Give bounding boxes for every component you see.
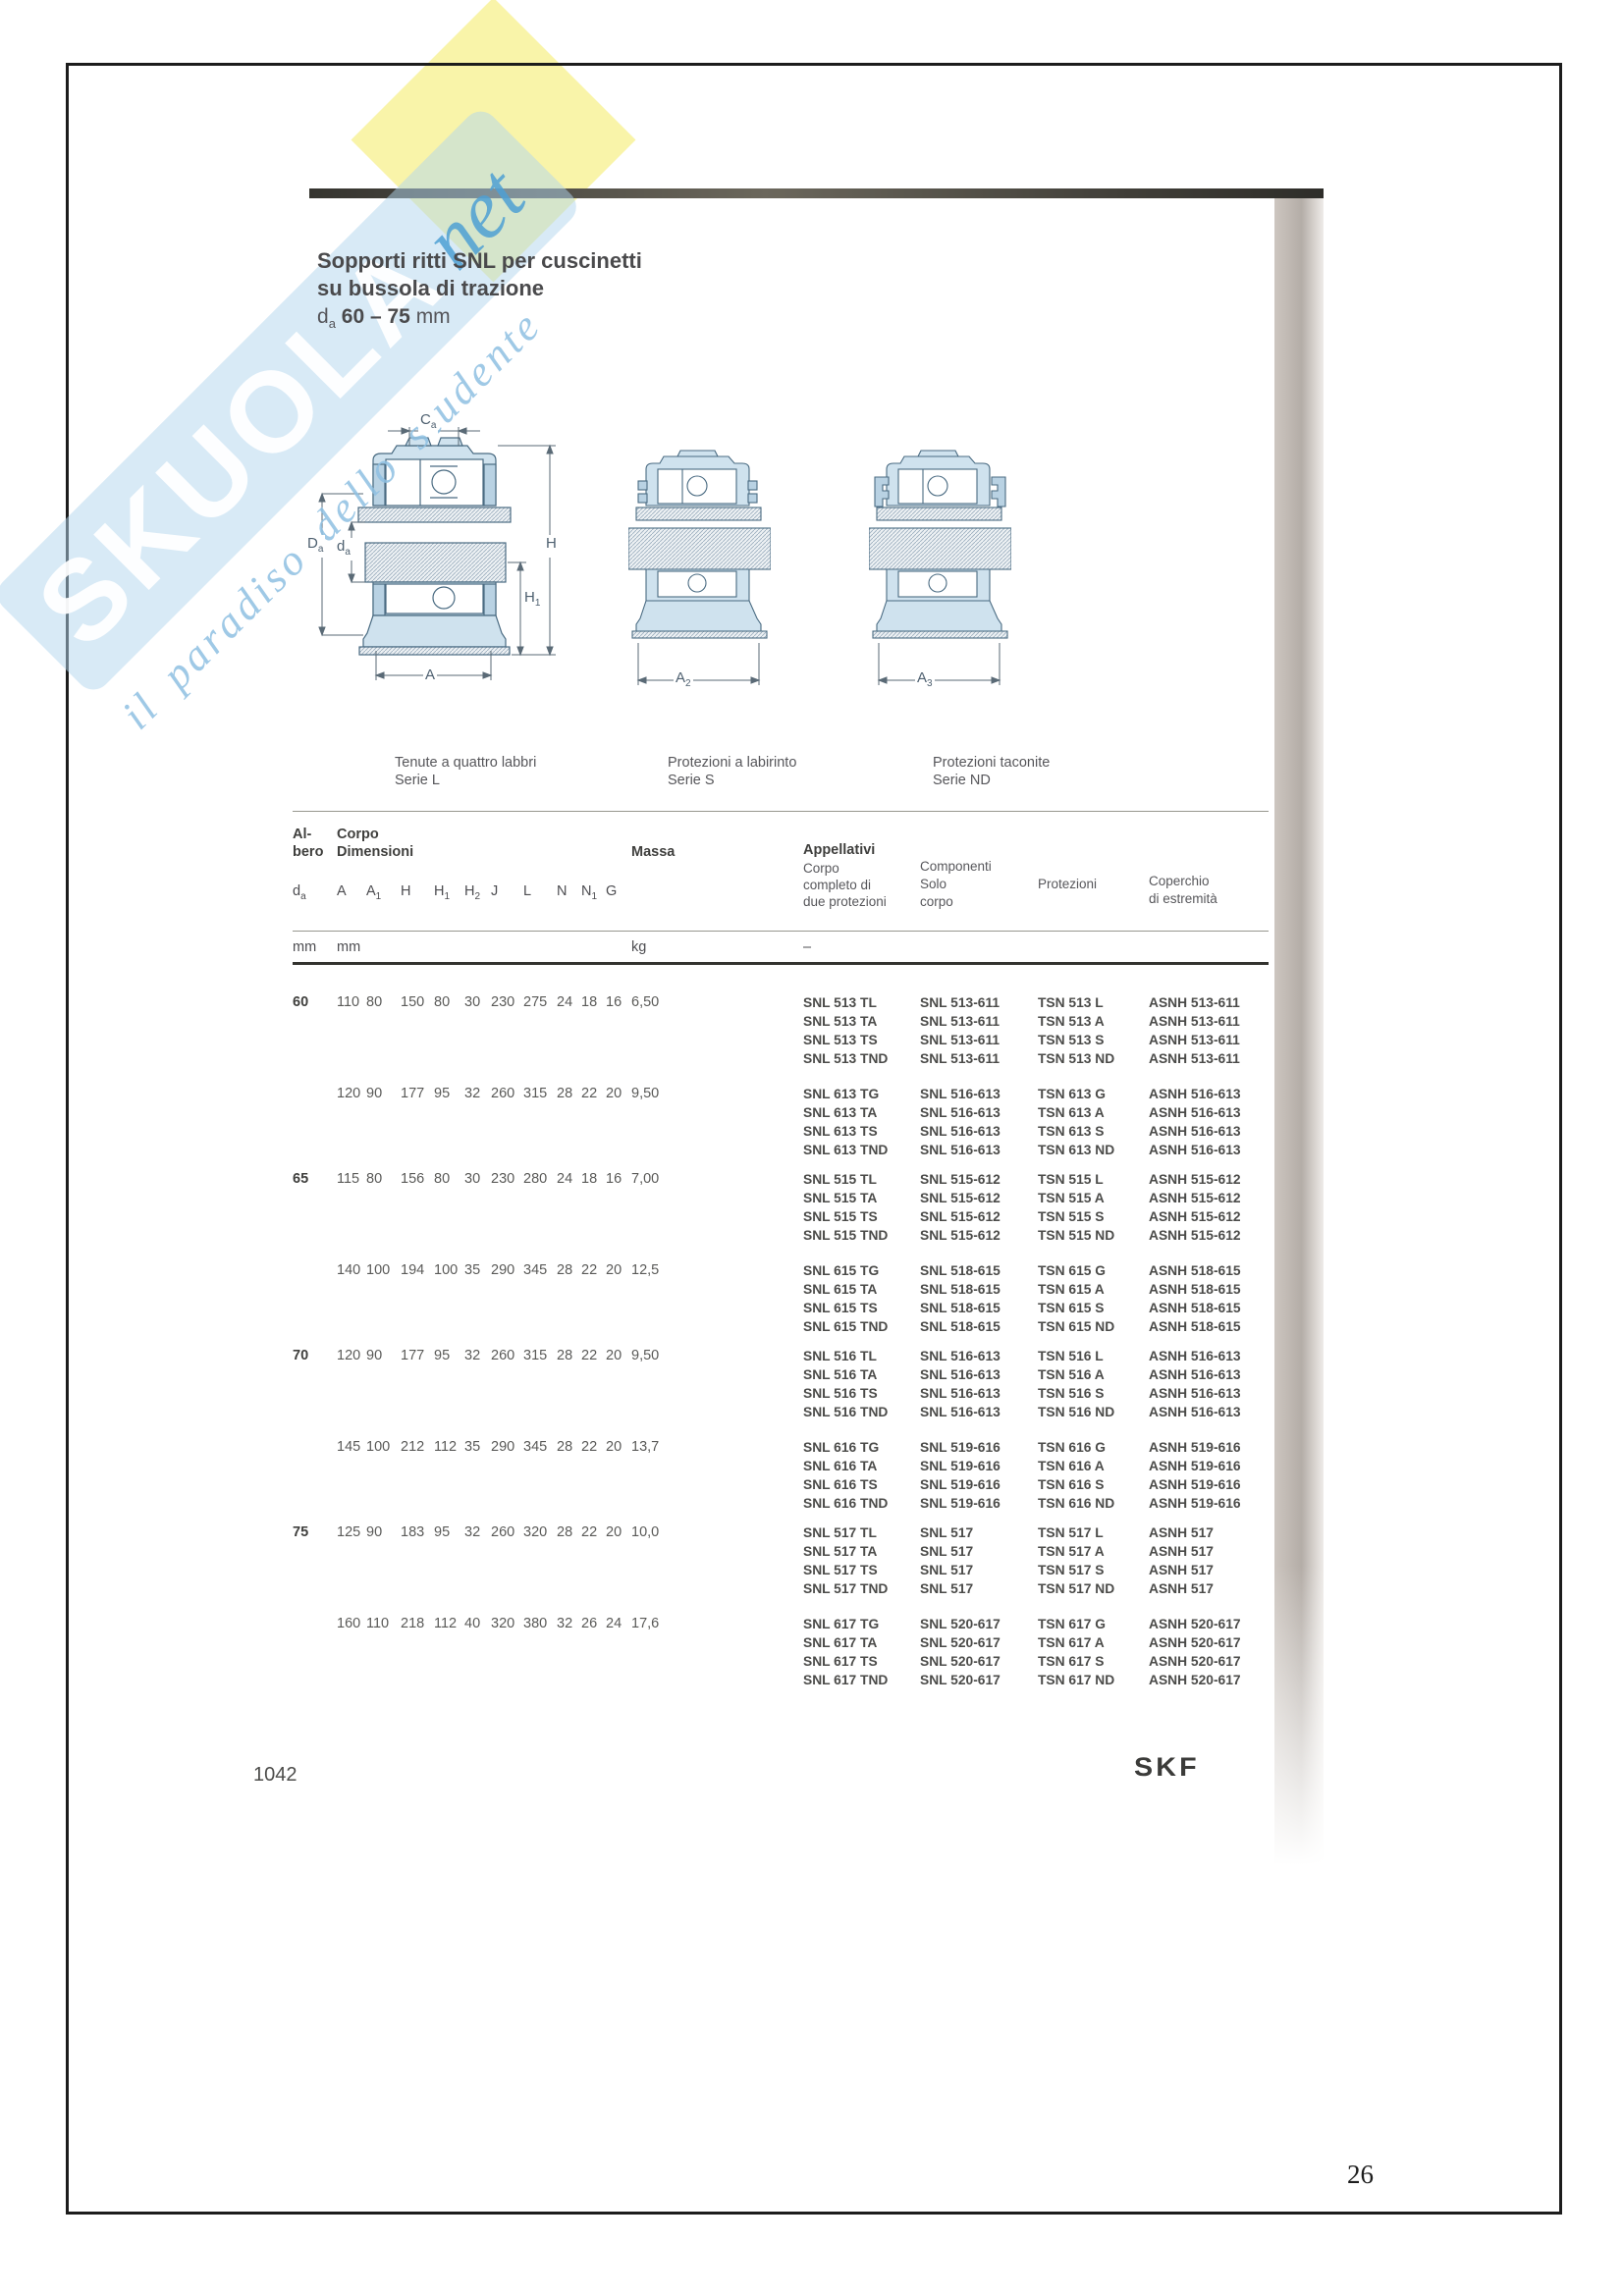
table-cell: 32 — [464, 1347, 480, 1365]
table-cell: SNL 616 TND — [803, 1494, 888, 1513]
table-cell: TSN 617 ND — [1038, 1671, 1114, 1689]
table-cell: 22 — [581, 1085, 597, 1103]
table-cell: SNL 616 TG — [803, 1438, 879, 1457]
table-cell: SNL 617 TG — [803, 1615, 879, 1633]
title-line-2: su bussola di trazione — [317, 275, 642, 302]
col-sym-J: J — [491, 883, 498, 902]
table-cell: SNL 617 TND — [803, 1671, 888, 1689]
table-cell: ASNH 518-615 — [1149, 1299, 1241, 1317]
table-cell: SNL 520-617 — [920, 1615, 1001, 1633]
table-cell: TSN 515 ND — [1038, 1226, 1114, 1245]
table-cell: SNL 517 TA — [803, 1542, 877, 1561]
header-appellativi: Appellativi — [803, 842, 875, 858]
table-cell: SNL 613 TA — [803, 1103, 877, 1122]
table-cell: ASNH 520-617 — [1149, 1652, 1241, 1671]
table-cell: SNL 516 TND — [803, 1403, 888, 1421]
table-cell: 20 — [606, 1438, 622, 1457]
table-cell: 218 — [401, 1615, 424, 1633]
table-cell: SNL 515-612 — [920, 1170, 1001, 1189]
table-cell: TSN 616 S — [1038, 1475, 1104, 1494]
table-cell: 230 — [491, 1170, 514, 1189]
table-cell: 280 — [523, 1170, 547, 1189]
table-cell: TSN 613 A — [1038, 1103, 1105, 1122]
dim-label-h1: H1 — [522, 589, 542, 612]
table-cell: ASNH 519-616 — [1149, 1438, 1241, 1457]
table-cell: SNL 515-612 — [920, 1226, 1001, 1245]
table-cell: 230 — [491, 993, 514, 1012]
table-cell: 32 — [464, 1523, 480, 1542]
table-cell: 100 — [434, 1261, 458, 1280]
table-cell: ASNH 518-615 — [1149, 1261, 1241, 1280]
table-cell: 90 — [366, 1523, 382, 1542]
table-cell: 22 — [581, 1523, 597, 1542]
table-cell: 17,6 — [631, 1615, 659, 1633]
catalog-page-number: 1042 — [253, 1764, 298, 1787]
col-sym-A1: A1 — [366, 883, 381, 902]
table-cell: SNL 515 TS — [803, 1207, 878, 1226]
table-cell: SNL 520-617 — [920, 1671, 1001, 1689]
unit-body: mm — [337, 939, 360, 955]
table-cell: SNL 520-617 — [920, 1652, 1001, 1671]
caption-serie-nd: Protezioni taconite Serie ND — [933, 754, 1050, 789]
table-cell: 13,7 — [631, 1438, 659, 1457]
table-cell: 32 — [464, 1085, 480, 1103]
table-cell: 380 — [523, 1615, 547, 1633]
dim-label-a2: A2 — [674, 669, 693, 692]
table-cell: 145 — [337, 1438, 360, 1457]
col-sym-H1: H1 — [434, 883, 450, 902]
table-cell: TSN 615 S — [1038, 1299, 1104, 1317]
scan-shadow-band — [1274, 196, 1324, 1865]
table-cell: 18 — [581, 1170, 597, 1189]
table-row: 1401001941003529034528222012,5SNL 615 TG… — [293, 1261, 1270, 1340]
table-cell: SNL 613 TS — [803, 1122, 878, 1141]
table-cell: SNL 516-613 — [920, 1122, 1001, 1141]
unit-shaft: mm — [293, 939, 316, 955]
table-cell: 110 — [366, 1615, 389, 1633]
table-cell: SNL 516-613 — [920, 1384, 1001, 1403]
dim-label-h: H — [544, 535, 559, 558]
table-cell: 20 — [606, 1347, 622, 1365]
table-cell: SNL 519-616 — [920, 1438, 1001, 1457]
table-cell: SNL 513-611 — [920, 1049, 1000, 1068]
table-cell: SNL 513-611 — [920, 993, 1000, 1012]
table-cell: TSN 516 A — [1038, 1365, 1105, 1384]
table-cell: SNL 515 TA — [803, 1189, 877, 1207]
table-cell: 9,50 — [631, 1347, 659, 1365]
header-shaft-1: Al- — [293, 827, 311, 842]
table-cell: 177 — [401, 1347, 424, 1365]
table-rule-top — [293, 811, 1269, 812]
table-cell: SNL 517 — [920, 1542, 973, 1561]
table-row: 651158015680302302802418167,00SNL 515 TL… — [293, 1170, 1270, 1249]
col-sym-G: G — [606, 883, 617, 902]
table-cell: TSN 513 L — [1038, 993, 1104, 1012]
table-cell: SNL 516-613 — [920, 1365, 1001, 1384]
header-app1-l2: completo di — [803, 878, 871, 892]
dim-label-a3: A3 — [915, 669, 935, 692]
table-row: 601108015080302302752418166,50SNL 513 TL… — [293, 993, 1270, 1072]
table-cell: 120 — [337, 1347, 360, 1365]
table-cell: 30 — [464, 993, 480, 1012]
table-cell: TSN 617 A — [1038, 1633, 1105, 1652]
table-cell: 20 — [606, 1523, 622, 1542]
table-cell: SNL 517 TS — [803, 1561, 878, 1579]
table-cell: 22 — [581, 1347, 597, 1365]
dim-label-da: da — [335, 538, 352, 561]
table-cell: 100 — [366, 1261, 390, 1280]
table-cell: ASNH 517 — [1149, 1579, 1214, 1598]
table-cell: 20 — [606, 1261, 622, 1280]
header-shaft-2: bero — [293, 844, 323, 860]
dim-label-a: A — [423, 667, 437, 689]
table-cell: TSN 517 S — [1038, 1561, 1104, 1579]
table-cell: SNL 516 TL — [803, 1347, 877, 1365]
table-cell: 30 — [464, 1170, 480, 1189]
table-cell: TSN 517 ND — [1038, 1579, 1114, 1598]
table-cell: ASNH 517 — [1149, 1561, 1214, 1579]
table-cell: SNL 617 TA — [803, 1633, 877, 1652]
table-cell: 75 — [293, 1523, 308, 1542]
header-app2-l1: Componenti — [920, 859, 992, 874]
table-cell: 70 — [293, 1347, 308, 1365]
table-cell: ASNH 513-611 — [1149, 1049, 1240, 1068]
table-row: 1209017795322603152822209,50SNL 613 TGSN… — [293, 1085, 1270, 1163]
table-cell: SNL 516-613 — [920, 1141, 1001, 1159]
table-cell: SNL 617 TS — [803, 1652, 878, 1671]
header-body-1: Corpo — [337, 827, 379, 842]
table-cell: 320 — [491, 1615, 514, 1633]
table-cell: ASNH 515-612 — [1149, 1170, 1241, 1189]
table-cell: 65 — [293, 1170, 308, 1189]
table-cell: SNL 516-613 — [920, 1085, 1001, 1103]
table-cell: TSN 517 L — [1038, 1523, 1104, 1542]
table-cell: 315 — [523, 1085, 547, 1103]
table-cell: SNL 615 TG — [803, 1261, 879, 1280]
table-cell: ASNH 518-615 — [1149, 1280, 1241, 1299]
table-cell: 290 — [491, 1438, 514, 1457]
table-cell: TSN 513 A — [1038, 1012, 1105, 1031]
table-cell: TSN 613 ND — [1038, 1141, 1114, 1159]
table-cell: ASNH 516-613 — [1149, 1403, 1241, 1421]
unit-appellativi: – — [803, 939, 811, 955]
table-cell: 28 — [557, 1085, 572, 1103]
table-cell: 28 — [557, 1347, 572, 1365]
table-cell: 112 — [434, 1615, 457, 1633]
table-cell: 125 — [337, 1523, 360, 1542]
table-cell: SNL 513 TL — [803, 993, 877, 1012]
table-cell: ASNH 515-612 — [1149, 1189, 1241, 1207]
table-cell: SNL 515 TL — [803, 1170, 877, 1189]
table-cell: 22 — [581, 1261, 597, 1280]
header-app2-l3: corpo — [920, 894, 953, 909]
col-sym-H: H — [401, 883, 410, 902]
table-cell: TSN 515 L — [1038, 1170, 1104, 1189]
table-row: 7512590183953226032028222010,0SNL 517 TL… — [293, 1523, 1270, 1602]
table-cell: 320 — [523, 1523, 547, 1542]
table-cell: ASNH 519-616 — [1149, 1457, 1241, 1475]
header-massa: Massa — [631, 844, 675, 860]
table-cell: ASNH 517 — [1149, 1523, 1214, 1542]
table-cell: ASNH 519-616 — [1149, 1494, 1241, 1513]
header-app3-l1: Protezioni — [1038, 877, 1097, 891]
col-sym-L: L — [523, 883, 531, 902]
header-app1-l3: due protezioni — [803, 894, 887, 909]
product-table: Al- bero Corpo Dimensioni Massa Appellat… — [293, 805, 1270, 1718]
header-app1-l1: Corpo — [803, 861, 839, 876]
table-cell: 260 — [491, 1523, 514, 1542]
table-cell: ASNH 520-617 — [1149, 1615, 1241, 1633]
table-cell: TSN 616 ND — [1038, 1494, 1114, 1513]
table-cell: 80 — [434, 1170, 450, 1189]
table-cell: ASNH 517 — [1149, 1542, 1214, 1561]
table-cell: ASNH 516-613 — [1149, 1347, 1241, 1365]
table-cell: ASNH 516-613 — [1149, 1103, 1241, 1122]
table-cell: ASNH 515-612 — [1149, 1226, 1241, 1245]
table-cell: 290 — [491, 1261, 514, 1280]
table-cell: TSN 616 G — [1038, 1438, 1106, 1457]
table-cell: 90 — [366, 1085, 382, 1103]
table-cell: 315 — [523, 1347, 547, 1365]
table-cell: 18 — [581, 993, 597, 1012]
table-cell: 194 — [401, 1261, 424, 1280]
table-cell: SNL 518-615 — [920, 1317, 1001, 1336]
table-cell: SNL 519-616 — [920, 1494, 1001, 1513]
table-cell: SNL 613 TND — [803, 1141, 888, 1159]
table-cell: ASNH 516-613 — [1149, 1085, 1241, 1103]
table-cell: TSN 517 A — [1038, 1542, 1105, 1561]
header-app4-l2: di estremità — [1149, 891, 1217, 906]
table-cell: TSN 513 ND — [1038, 1049, 1114, 1068]
table-cell: TSN 617 S — [1038, 1652, 1104, 1671]
table-cell: ASNH 520-617 — [1149, 1633, 1241, 1652]
table-cell: 160 — [337, 1615, 360, 1633]
bearing-diagram-labyrinth-s — [628, 432, 771, 687]
table-cell: 22 — [581, 1438, 597, 1457]
table-cell: TSN 613 G — [1038, 1085, 1106, 1103]
table-cell: TSN 515 S — [1038, 1207, 1104, 1226]
table-cell: TSN 515 A — [1038, 1189, 1105, 1207]
table-cell: 16 — [606, 993, 622, 1012]
table-cell: SNL 513 TA — [803, 1012, 877, 1031]
table-cell: SNL 613 TG — [803, 1085, 879, 1103]
table-cell: 80 — [366, 1170, 382, 1189]
table-cell: SNL 517 TND — [803, 1579, 888, 1598]
table-cell: TSN 516 ND — [1038, 1403, 1114, 1421]
table-cell: SNL 516-613 — [920, 1103, 1001, 1122]
table-cell: 120 — [337, 1085, 360, 1103]
table-cell: 16 — [606, 1170, 622, 1189]
table-cell: TSN 617 G — [1038, 1615, 1106, 1633]
table-cell: ASNH 518-615 — [1149, 1317, 1241, 1336]
table-cell: 95 — [434, 1523, 450, 1542]
table-cell: 28 — [557, 1523, 572, 1542]
table-cell: SNL 513-611 — [920, 1012, 1000, 1031]
table-cell: 260 — [491, 1347, 514, 1365]
table-cell: SNL 519-616 — [920, 1475, 1001, 1494]
table-cell: ASNH 516-613 — [1149, 1122, 1241, 1141]
table-cell: ASNH 513-611 — [1149, 1012, 1240, 1031]
table-cell: SNL 516 TS — [803, 1384, 878, 1403]
table-cell: SNL 516 TA — [803, 1365, 877, 1384]
header-app4-l1: Coperchio — [1149, 874, 1210, 888]
table-cell: 275 — [523, 993, 547, 1012]
table-cell: SNL 517 — [920, 1523, 973, 1542]
table-cell: 95 — [434, 1085, 450, 1103]
table-cell: 260 — [491, 1085, 514, 1103]
dim-label-Da: Da — [305, 535, 325, 558]
table-cell: 6,50 — [631, 993, 659, 1012]
title-size-range: da 60 – 75 mm — [317, 302, 642, 339]
table-cell: ASNH 516-613 — [1149, 1141, 1241, 1159]
table-cell: TSN 616 A — [1038, 1457, 1105, 1475]
table-cell: SNL 520-617 — [920, 1633, 1001, 1652]
table-row: 1451002121123529034528222013,7SNL 616 TG… — [293, 1438, 1270, 1517]
table-cell: SNL 518-615 — [920, 1261, 1001, 1280]
table-cell: ASNH 516-613 — [1149, 1365, 1241, 1384]
table-cell: SNL 517 TL — [803, 1523, 877, 1542]
col-sym-N: N — [557, 883, 567, 902]
table-cell: 95 — [434, 1347, 450, 1365]
table-cell: 28 — [557, 1261, 572, 1280]
table-cell: 26 — [581, 1615, 597, 1633]
table-cell: 20 — [606, 1085, 622, 1103]
table-cell: 345 — [523, 1261, 547, 1280]
table-cell: SNL 517 — [920, 1579, 973, 1598]
table-cell: ASNH 513-611 — [1149, 1031, 1240, 1049]
table-cell: SNL 519-616 — [920, 1457, 1001, 1475]
table-cell: SNL 615 TND — [803, 1317, 888, 1336]
table-cell: SNL 615 TA — [803, 1280, 877, 1299]
table-cell: 156 — [401, 1170, 424, 1189]
table-cell: 212 — [401, 1438, 424, 1457]
table-cell: ASNH 519-616 — [1149, 1475, 1241, 1494]
col-sym-A: A — [337, 883, 347, 902]
table-cell: SNL 616 TA — [803, 1457, 877, 1475]
table-cell: SNL 616 TS — [803, 1475, 878, 1494]
table-cell: 80 — [366, 993, 382, 1012]
table-cell: 115 — [337, 1170, 359, 1189]
table-row: 1601102181124032038032262417,6SNL 617 TG… — [293, 1615, 1270, 1693]
table-cell: 150 — [401, 993, 424, 1012]
title-line-1: Sopporti ritti SNL per cuscinetti — [317, 247, 642, 275]
table-cell: 112 — [434, 1438, 457, 1457]
table-cell: 40 — [464, 1615, 480, 1633]
table-cell: 7,00 — [631, 1170, 659, 1189]
table-cell: 9,50 — [631, 1085, 659, 1103]
table-cell: SNL 515 TND — [803, 1226, 888, 1245]
col-sym-N1: N1 — [581, 883, 597, 902]
table-cell: 24 — [557, 993, 572, 1012]
table-row: 701209017795322603152822209,50SNL 516 TL… — [293, 1347, 1270, 1425]
header-body-2: Dimensioni — [337, 844, 413, 860]
table-cell: 140 — [337, 1261, 360, 1280]
table-cell: SNL 515-612 — [920, 1189, 1001, 1207]
table-cell: 80 — [434, 993, 450, 1012]
table-cell: SNL 515-612 — [920, 1207, 1001, 1226]
table-cell: 90 — [366, 1347, 382, 1365]
table-rule-thick — [293, 962, 1269, 965]
table-cell: 345 — [523, 1438, 547, 1457]
table-cell: 28 — [557, 1438, 572, 1457]
table-cell: SNL 518-615 — [920, 1299, 1001, 1317]
page-title: Sopporti ritti SNL per cuscinetti su bus… — [317, 247, 642, 339]
table-cell: TSN 615 ND — [1038, 1317, 1114, 1336]
table-cell: 100 — [366, 1438, 390, 1457]
table-cell: ASNH 515-612 — [1149, 1207, 1241, 1226]
col-sym-H2: H2 — [464, 883, 480, 902]
table-cell: TSN 513 S — [1038, 1031, 1104, 1049]
table-cell: SNL 615 TS — [803, 1299, 878, 1317]
table-cell: SNL 518-615 — [920, 1280, 1001, 1299]
table-cell: SNL 513-611 — [920, 1031, 1000, 1049]
table-cell: TSN 615 A — [1038, 1280, 1105, 1299]
table-cell: SNL 517 — [920, 1561, 973, 1579]
table-cell: SNL 513 TS — [803, 1031, 878, 1049]
table-cell: 60 — [293, 993, 308, 1012]
dim-label-ca: Ca — [418, 411, 438, 434]
table-cell: TSN 516 S — [1038, 1384, 1104, 1403]
table-cell: SNL 516-613 — [920, 1403, 1001, 1421]
table-cell: 35 — [464, 1438, 480, 1457]
table-cell: 10,0 — [631, 1523, 659, 1542]
table-cell: 110 — [337, 993, 359, 1012]
table-cell: 177 — [401, 1085, 424, 1103]
caption-serie-l: Tenute a quattro labbri Serie L — [395, 754, 536, 789]
table-cell: ASNH 516-613 — [1149, 1384, 1241, 1403]
table-cell: 24 — [606, 1615, 622, 1633]
caption-serie-s: Protezioni a labirinto Serie S — [668, 754, 796, 789]
table-cell: ASNH 513-611 — [1149, 993, 1240, 1012]
table-cell: ASNH 520-617 — [1149, 1671, 1241, 1689]
table-cell: SNL 516-613 — [920, 1347, 1001, 1365]
table-rule-mid — [293, 931, 1269, 932]
table-cell: 24 — [557, 1170, 572, 1189]
header-app2-l2: Solo — [920, 877, 947, 891]
col-sym-da: da — [293, 883, 306, 902]
table-cell: 183 — [401, 1523, 424, 1542]
table-cell: 35 — [464, 1261, 480, 1280]
table-cell: TSN 615 G — [1038, 1261, 1106, 1280]
unit-massa: kg — [631, 939, 646, 955]
scan-page-number: 26 — [1347, 2160, 1374, 2190]
skf-logo: SKF — [1134, 1752, 1200, 1783]
bearing-diagram-taconite-nd — [869, 432, 1011, 687]
table-cell: 12,5 — [631, 1261, 659, 1280]
table-cell: TSN 516 L — [1038, 1347, 1104, 1365]
table-cell: SNL 513 TND — [803, 1049, 888, 1068]
table-cell: 32 — [557, 1615, 572, 1633]
table-cell: TSN 613 S — [1038, 1122, 1104, 1141]
